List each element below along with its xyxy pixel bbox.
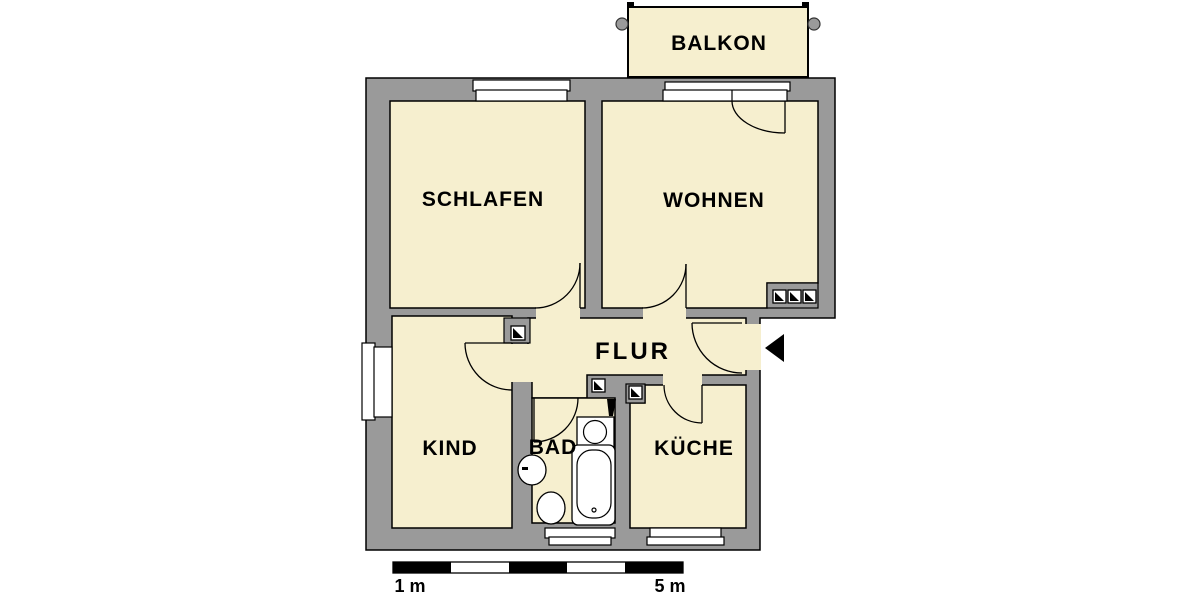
entrance-arrow-icon [765, 334, 784, 362]
bathtub-icon [572, 445, 615, 525]
floorplan-drawing: 1 m 5 m BALKON SCHLAFEN WOHNEN FLUR KIND… [0, 0, 1200, 600]
window-balcony-door-wohnen-icon [663, 82, 790, 101]
window-bad-icon [545, 528, 615, 545]
toilet-icon [537, 492, 565, 524]
door-opening-entrance [745, 324, 761, 370]
balcony-corner-mark-icon [802, 2, 809, 8]
shaft-marker-icon [773, 290, 786, 303]
shaft-marker-icon [629, 386, 642, 399]
washing-machine-icon [577, 417, 614, 447]
washbasin-icon [518, 455, 546, 485]
wohnen-label: WOHNEN [663, 189, 765, 212]
balcony-post-icon [616, 18, 628, 30]
scale-label-5m: 5 m [654, 576, 685, 596]
flur-label: FLUR [595, 338, 671, 365]
scale-bar: 1 m 5 m [393, 562, 686, 596]
door-opening-schlafen [536, 307, 580, 319]
scale-label-1m: 1 m [394, 576, 425, 596]
balcony-corner-mark-icon [627, 2, 634, 8]
shaft-marker-icon [803, 290, 816, 303]
floorplan-page: 1 m 5 m BALKON SCHLAFEN WOHNEN FLUR KIND… [0, 0, 1200, 600]
door-opening-kueche [663, 374, 702, 386]
kind-label: KIND [422, 437, 477, 460]
door-opening-wohnen [643, 307, 686, 319]
shaft-marker-icon [788, 290, 801, 303]
room-kind [392, 316, 512, 528]
schlafen-label: SCHLAFEN [422, 188, 544, 211]
balkon-label: BALKON [671, 32, 767, 55]
shaft-marker-icon [511, 326, 525, 340]
window-kueche-icon [647, 528, 724, 545]
bad-label: BAD [529, 436, 578, 459]
door-opening-kind [511, 344, 533, 382]
kueche-label: KÜCHE [654, 437, 734, 460]
window-kind-icon [362, 343, 392, 420]
balcony-post-icon [808, 18, 820, 30]
window-schlafen-icon [473, 80, 570, 101]
shaft-marker-icon [592, 379, 605, 392]
